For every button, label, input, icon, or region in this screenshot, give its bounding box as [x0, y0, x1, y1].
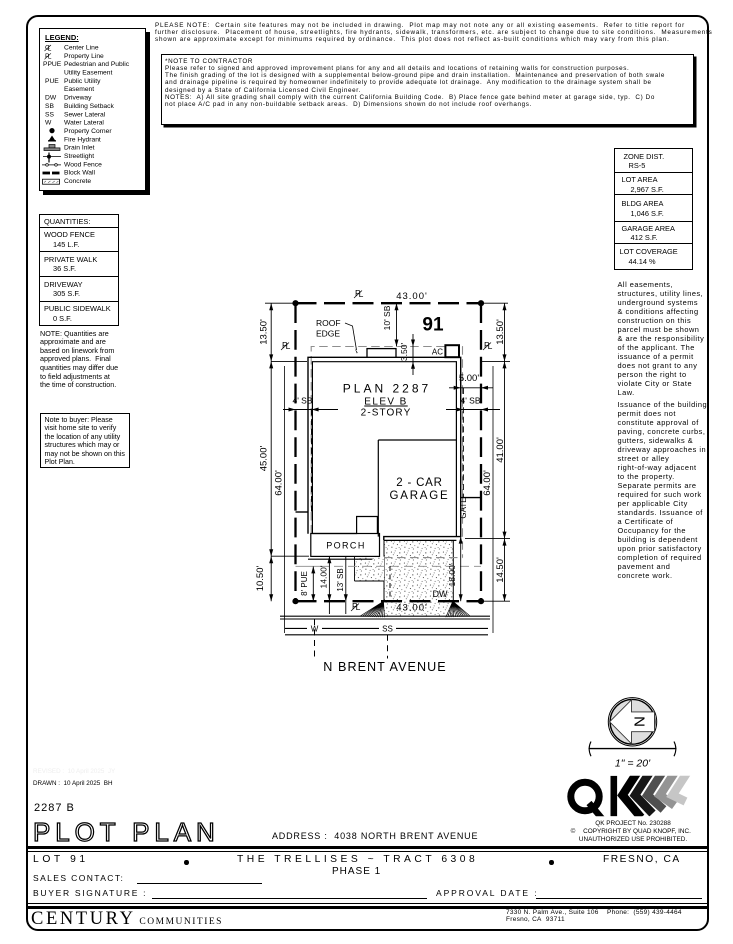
svg-text:N: N: [631, 716, 648, 727]
svg-text:DW: DW: [433, 589, 448, 599]
svg-text:18.00': 18.00': [447, 563, 457, 586]
svg-text:UNAUTHORIZED USE PROHIBITED.: UNAUTHORIZED USE PROHIBITED.: [579, 836, 688, 843]
svg-text:43.00': 43.00': [396, 603, 428, 614]
svg-text:14.00': 14.00': [319, 565, 329, 588]
svg-text:EDGE: EDGE: [316, 329, 340, 339]
svg-text:L: L: [359, 289, 364, 299]
svg-text:10' SB: 10' SB: [382, 305, 392, 330]
svg-text:4' SB: 4' SB: [460, 396, 480, 406]
svg-text:N BRENT AVENUE: N BRENT AVENUE: [323, 660, 446, 674]
svg-text:AC: AC: [432, 348, 443, 357]
svg-text:64.00': 64.00': [274, 470, 285, 496]
svg-text:91: 91: [422, 315, 444, 336]
svg-text:©: ©: [571, 827, 576, 835]
svg-text:1" = 20': 1" = 20': [615, 758, 651, 770]
svg-text:COPYRIGHT BY QUAD KNOPF, INC.: COPYRIGHT BY QUAD KNOPF, INC.: [583, 828, 691, 835]
svg-text:13' SB: 13' SB: [336, 568, 345, 591]
svg-text:4' SB: 4' SB: [292, 396, 312, 406]
svg-text:41.00': 41.00': [495, 437, 506, 463]
svg-text:2 - CAR: 2 - CAR: [396, 477, 443, 489]
svg-text:L: L: [286, 341, 291, 351]
svg-text:10.50': 10.50': [255, 566, 266, 592]
svg-text:ROOF: ROOF: [316, 318, 341, 328]
svg-text:PLAN 2287: PLAN 2287: [343, 382, 431, 396]
svg-text:64.00': 64.00': [482, 470, 493, 496]
svg-text:8' PUE: 8' PUE: [300, 571, 309, 596]
svg-text:43.00': 43.00': [396, 291, 428, 302]
svg-text:GARAGE: GARAGE: [389, 490, 449, 502]
svg-text:13.50': 13.50': [259, 319, 270, 345]
svg-text:3.50': 3.50': [399, 343, 409, 362]
svg-text:13.50': 13.50': [495, 319, 506, 345]
svg-text:14.50': 14.50': [495, 557, 506, 583]
svg-text:2-STORY: 2-STORY: [361, 408, 412, 419]
svg-text:L: L: [488, 341, 493, 351]
svg-text:SS: SS: [382, 624, 393, 633]
svg-text:GATE: GATE: [459, 497, 468, 518]
svg-text:PORCH: PORCH: [326, 541, 366, 551]
svg-text:QK PROJECT No. 230288: QK PROJECT No. 230288: [595, 820, 671, 827]
svg-text:ELEV B: ELEV B: [364, 397, 407, 408]
svg-text:L: L: [356, 602, 361, 612]
svg-text:45.00': 45.00': [259, 446, 270, 472]
svg-text:5.00': 5.00': [459, 373, 479, 384]
